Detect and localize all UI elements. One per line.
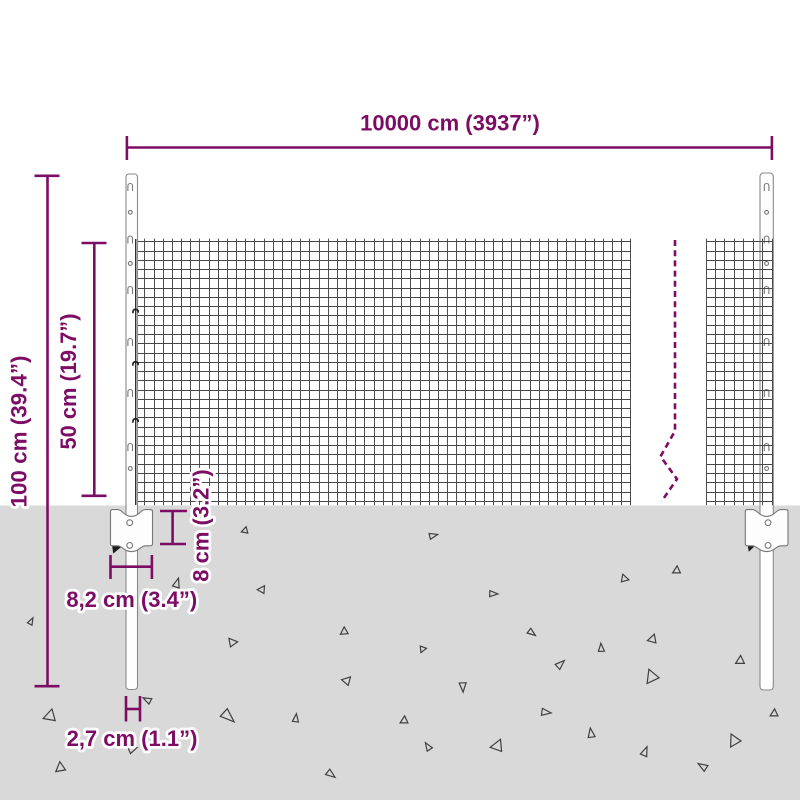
svg-text:8 cm (3.2”): 8 cm (3.2”) — [189, 469, 214, 582]
svg-text:8,2 cm (3.4”): 8,2 cm (3.4”) — [66, 587, 197, 612]
svg-text:100 cm (39.4”): 100 cm (39.4”) — [7, 356, 32, 508]
svg-text:2,7 cm (1.1”): 2,7 cm (1.1”) — [67, 726, 198, 751]
svg-text:50 cm (19.7”): 50 cm (19.7”) — [56, 314, 81, 450]
svg-text:10000 cm (3937”): 10000 cm (3937”) — [360, 111, 540, 136]
